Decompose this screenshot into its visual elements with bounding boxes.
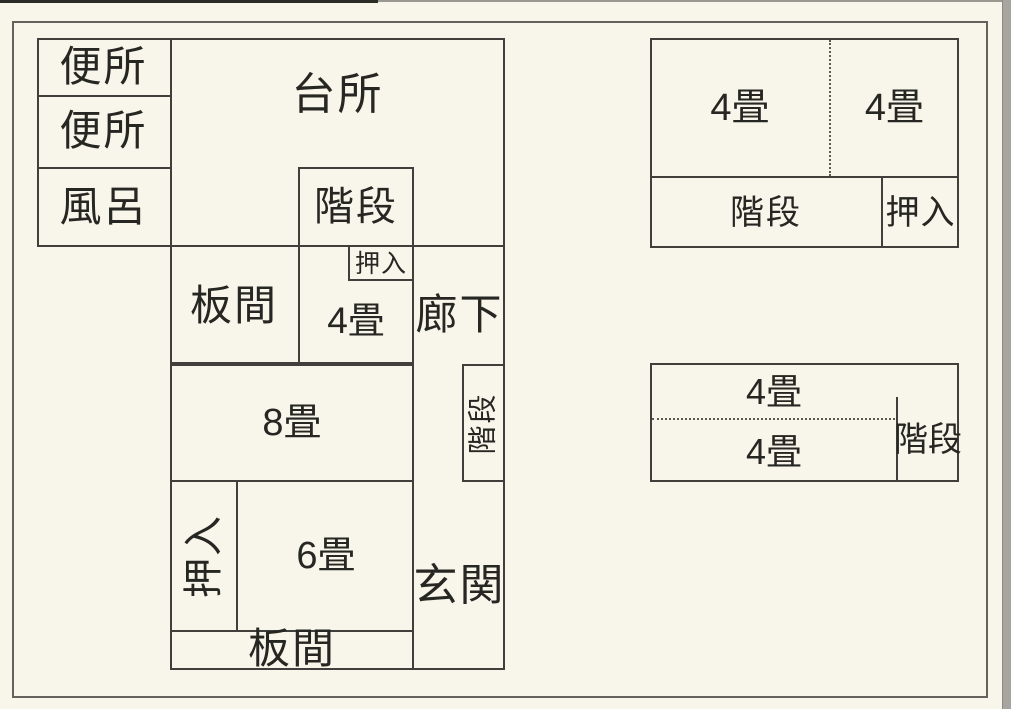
label-f2n-tatami-4-right: 4畳: [830, 38, 959, 178]
label-entrance: 玄関: [414, 496, 505, 676]
label-stairs-lower: 階段: [462, 364, 505, 482]
scan-edge-top-dark: [0, 0, 378, 3]
label-bath: 風呂: [37, 167, 170, 247]
label-stairs-upper: 階段: [298, 167, 414, 247]
label-tatami-6: 6畳: [238, 482, 414, 630]
label-f2s-stairs: 階段: [897, 397, 959, 482]
label-kitchen: 台所: [170, 55, 505, 135]
label-closet-lower: 押入: [170, 482, 238, 630]
label-f2n-tatami-4-left: 4畳: [650, 38, 830, 178]
label-toilet-1: 便所: [37, 38, 170, 95]
label-closet-upper: 押入: [348, 247, 414, 281]
label-f2s-tatami-4-upper: 4畳: [651, 363, 897, 421]
label-f2n-stairs: 階段: [650, 178, 882, 248]
floor-plan-scan: 便所 便所 風呂 台所 階段 押入 板間 4畳 廊下 8畳 階段 押入 6畳 板…: [0, 0, 1011, 709]
label-toilet-2: 便所: [37, 95, 170, 167]
label-corridor: 廊下: [414, 255, 505, 375]
label-f2n-closet: 押入: [882, 178, 959, 248]
label-wood-middle: 板間: [170, 247, 298, 364]
label-tatami-8: 8畳: [170, 364, 414, 482]
label-tatami-4: 4畳: [298, 277, 414, 364]
scan-edge-right: [1002, 0, 1011, 709]
label-wood-bottom: 板間: [170, 626, 414, 672]
scan-edge-top-light: [378, 0, 1011, 2]
label-f2s-tatami-4-lower: 4畳: [651, 421, 897, 482]
